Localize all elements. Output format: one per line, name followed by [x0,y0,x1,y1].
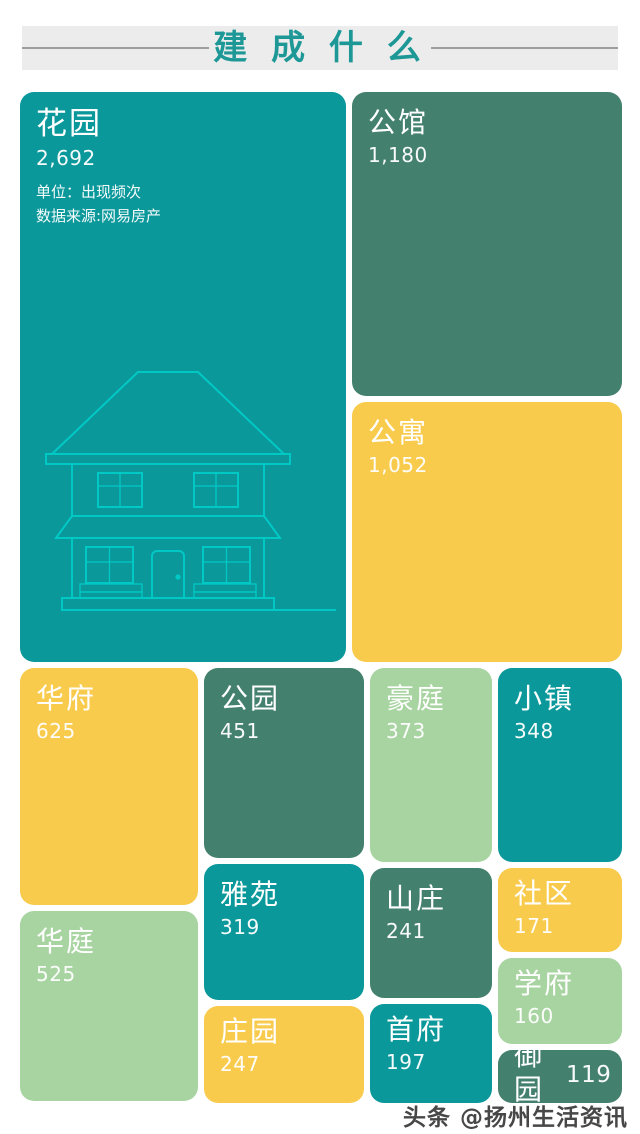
page-title: 建 成 什 么 [209,31,431,65]
tile-value: 319 [220,915,348,939]
tile-value: 171 [514,914,606,938]
tile-value: 348 [514,719,606,743]
tile-yayuan: 雅苑 319 [204,864,364,1000]
tile-label: 华府 [36,682,182,716]
tile-label: 公寓 [368,416,606,450]
tile-xiaozhen: 小镇 348 [498,668,622,862]
tile-value: 119 [566,1062,611,1088]
tile-label: 公馆 [368,106,606,140]
tile-label: 山庄 [386,882,476,916]
house-icon [34,360,340,618]
tile-label: 花园 [36,106,330,143]
title-band: 建 成 什 么 [22,26,618,70]
tile-label: 庄园 [220,1015,348,1049]
tile-value: 1,052 [368,453,606,477]
tile-value: 451 [220,719,348,743]
tile-value: 160 [514,1004,606,1028]
tile-value: 525 [36,962,182,986]
tile-label: 御园 [514,1050,544,1103]
title-rule-left [22,47,209,49]
tile-shequ: 社区 171 [498,868,622,952]
tile-value: 247 [220,1052,348,1076]
tile-label: 雅苑 [220,878,348,912]
tile-gongguan: 公馆 1,180 [352,92,622,396]
watermark: 头条 @扬州生活资讯 [403,1098,628,1132]
tile-gongyuan: 公园 451 [204,668,364,858]
tile-value: 373 [386,719,476,743]
tile-value: 2,692 [36,146,330,170]
tile-label: 豪庭 [386,682,476,716]
source-note: 数据来源:网易房产 [36,204,330,228]
tile-gongyu: 公寓 1,052 [352,402,622,662]
tile-value: 241 [386,919,476,943]
tile-value: 625 [36,719,182,743]
tile-label: 首府 [386,1013,476,1047]
tile-haoting: 豪庭 373 [370,668,492,862]
title-rule-right [431,47,618,49]
tile-shanzhuang: 山庄 241 [370,868,492,998]
tile-label: 小镇 [514,682,606,716]
tile-huafu: 华府 625 [20,668,198,905]
tile-zhuangyuan: 庄园 247 [204,1006,364,1103]
tile-label: 公园 [220,682,348,716]
tile-shoufu: 首府 197 [370,1004,492,1103]
tile-huayuan: 花园 2,692 单位：出现频次 数据来源:网易房产 [20,92,346,662]
tile-huating: 华庭 525 [20,911,198,1101]
tile-xuefu: 学府 160 [498,958,622,1044]
tile-label: 华庭 [36,925,182,959]
tile-yuyuan: 御园 119 [498,1050,622,1103]
infographic-treemap: 建 成 什 么 花园 2,692 单位：出现频次 数据来源:网易房产 [0,0,640,1134]
tile-value: 197 [386,1050,476,1074]
tile-label: 社区 [514,877,606,911]
unit-note: 单位：出现频次 [36,180,330,204]
tile-label: 学府 [514,967,606,1001]
chart-notes: 单位：出现频次 数据来源:网易房产 [36,180,330,228]
tile-value: 1,180 [368,143,606,167]
